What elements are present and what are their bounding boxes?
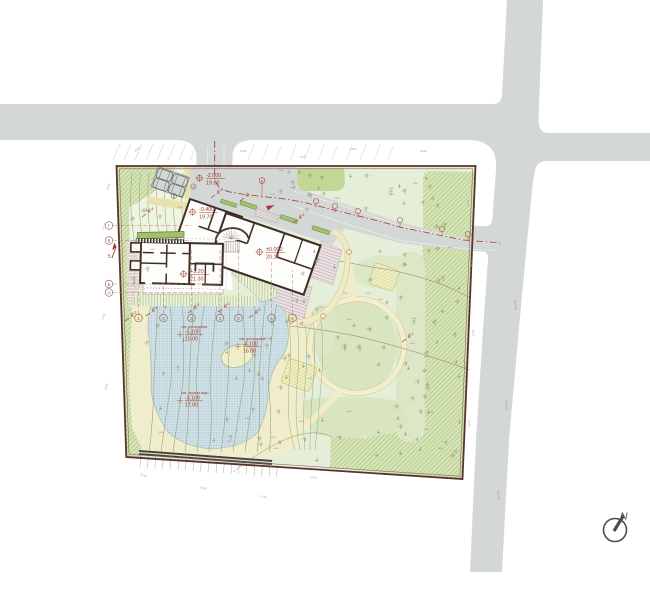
svg-text:15.00: 15.00 [185, 337, 198, 343]
svg-text:отм. зеркала воды: отм. зеркала воды [181, 391, 209, 395]
svg-text:5: 5 [173, 195, 175, 199]
svg-text:N: N [620, 511, 628, 523]
svg-text:В: В [107, 238, 110, 243]
svg-text:21.30: 21.30 [190, 277, 204, 283]
svg-text:+1.20: +1.20 [190, 269, 204, 275]
svg-text:20.10: 20.10 [266, 255, 280, 261]
svg-text:Б: Б [108, 282, 111, 287]
svg-text:16.00: 16.00 [243, 349, 256, 355]
svg-text:5: 5 [108, 254, 111, 260]
svg-text:19.70: 19.70 [199, 215, 213, 221]
svg-text:19.50: 19.50 [420, 149, 427, 153]
svg-text:отм. дна водоема: отм. дна водоема [239, 337, 265, 341]
svg-text:-0.400: -0.400 [199, 207, 214, 213]
svg-text:-2.000: -2.000 [206, 173, 221, 179]
svg-text:19.50: 19.50 [467, 420, 472, 427]
svg-text:3: 3 [193, 185, 195, 189]
svg-text:±0.000: ±0.000 [266, 247, 282, 253]
svg-text:17.00: 17.00 [185, 403, 198, 409]
svg-text:19.50: 19.50 [471, 330, 476, 337]
svg-text:А: А [107, 290, 110, 295]
svg-text:отм. дна водоема: отм. дна водоема [181, 325, 207, 329]
svg-text:19.50: 19.50 [206, 181, 220, 187]
svg-text:19.50: 19.50 [240, 149, 247, 153]
svg-text:19.50: 19.50 [466, 200, 471, 207]
svg-text:19.50: 19.50 [469, 260, 474, 267]
svg-text:19.50: 19.50 [350, 147, 357, 151]
